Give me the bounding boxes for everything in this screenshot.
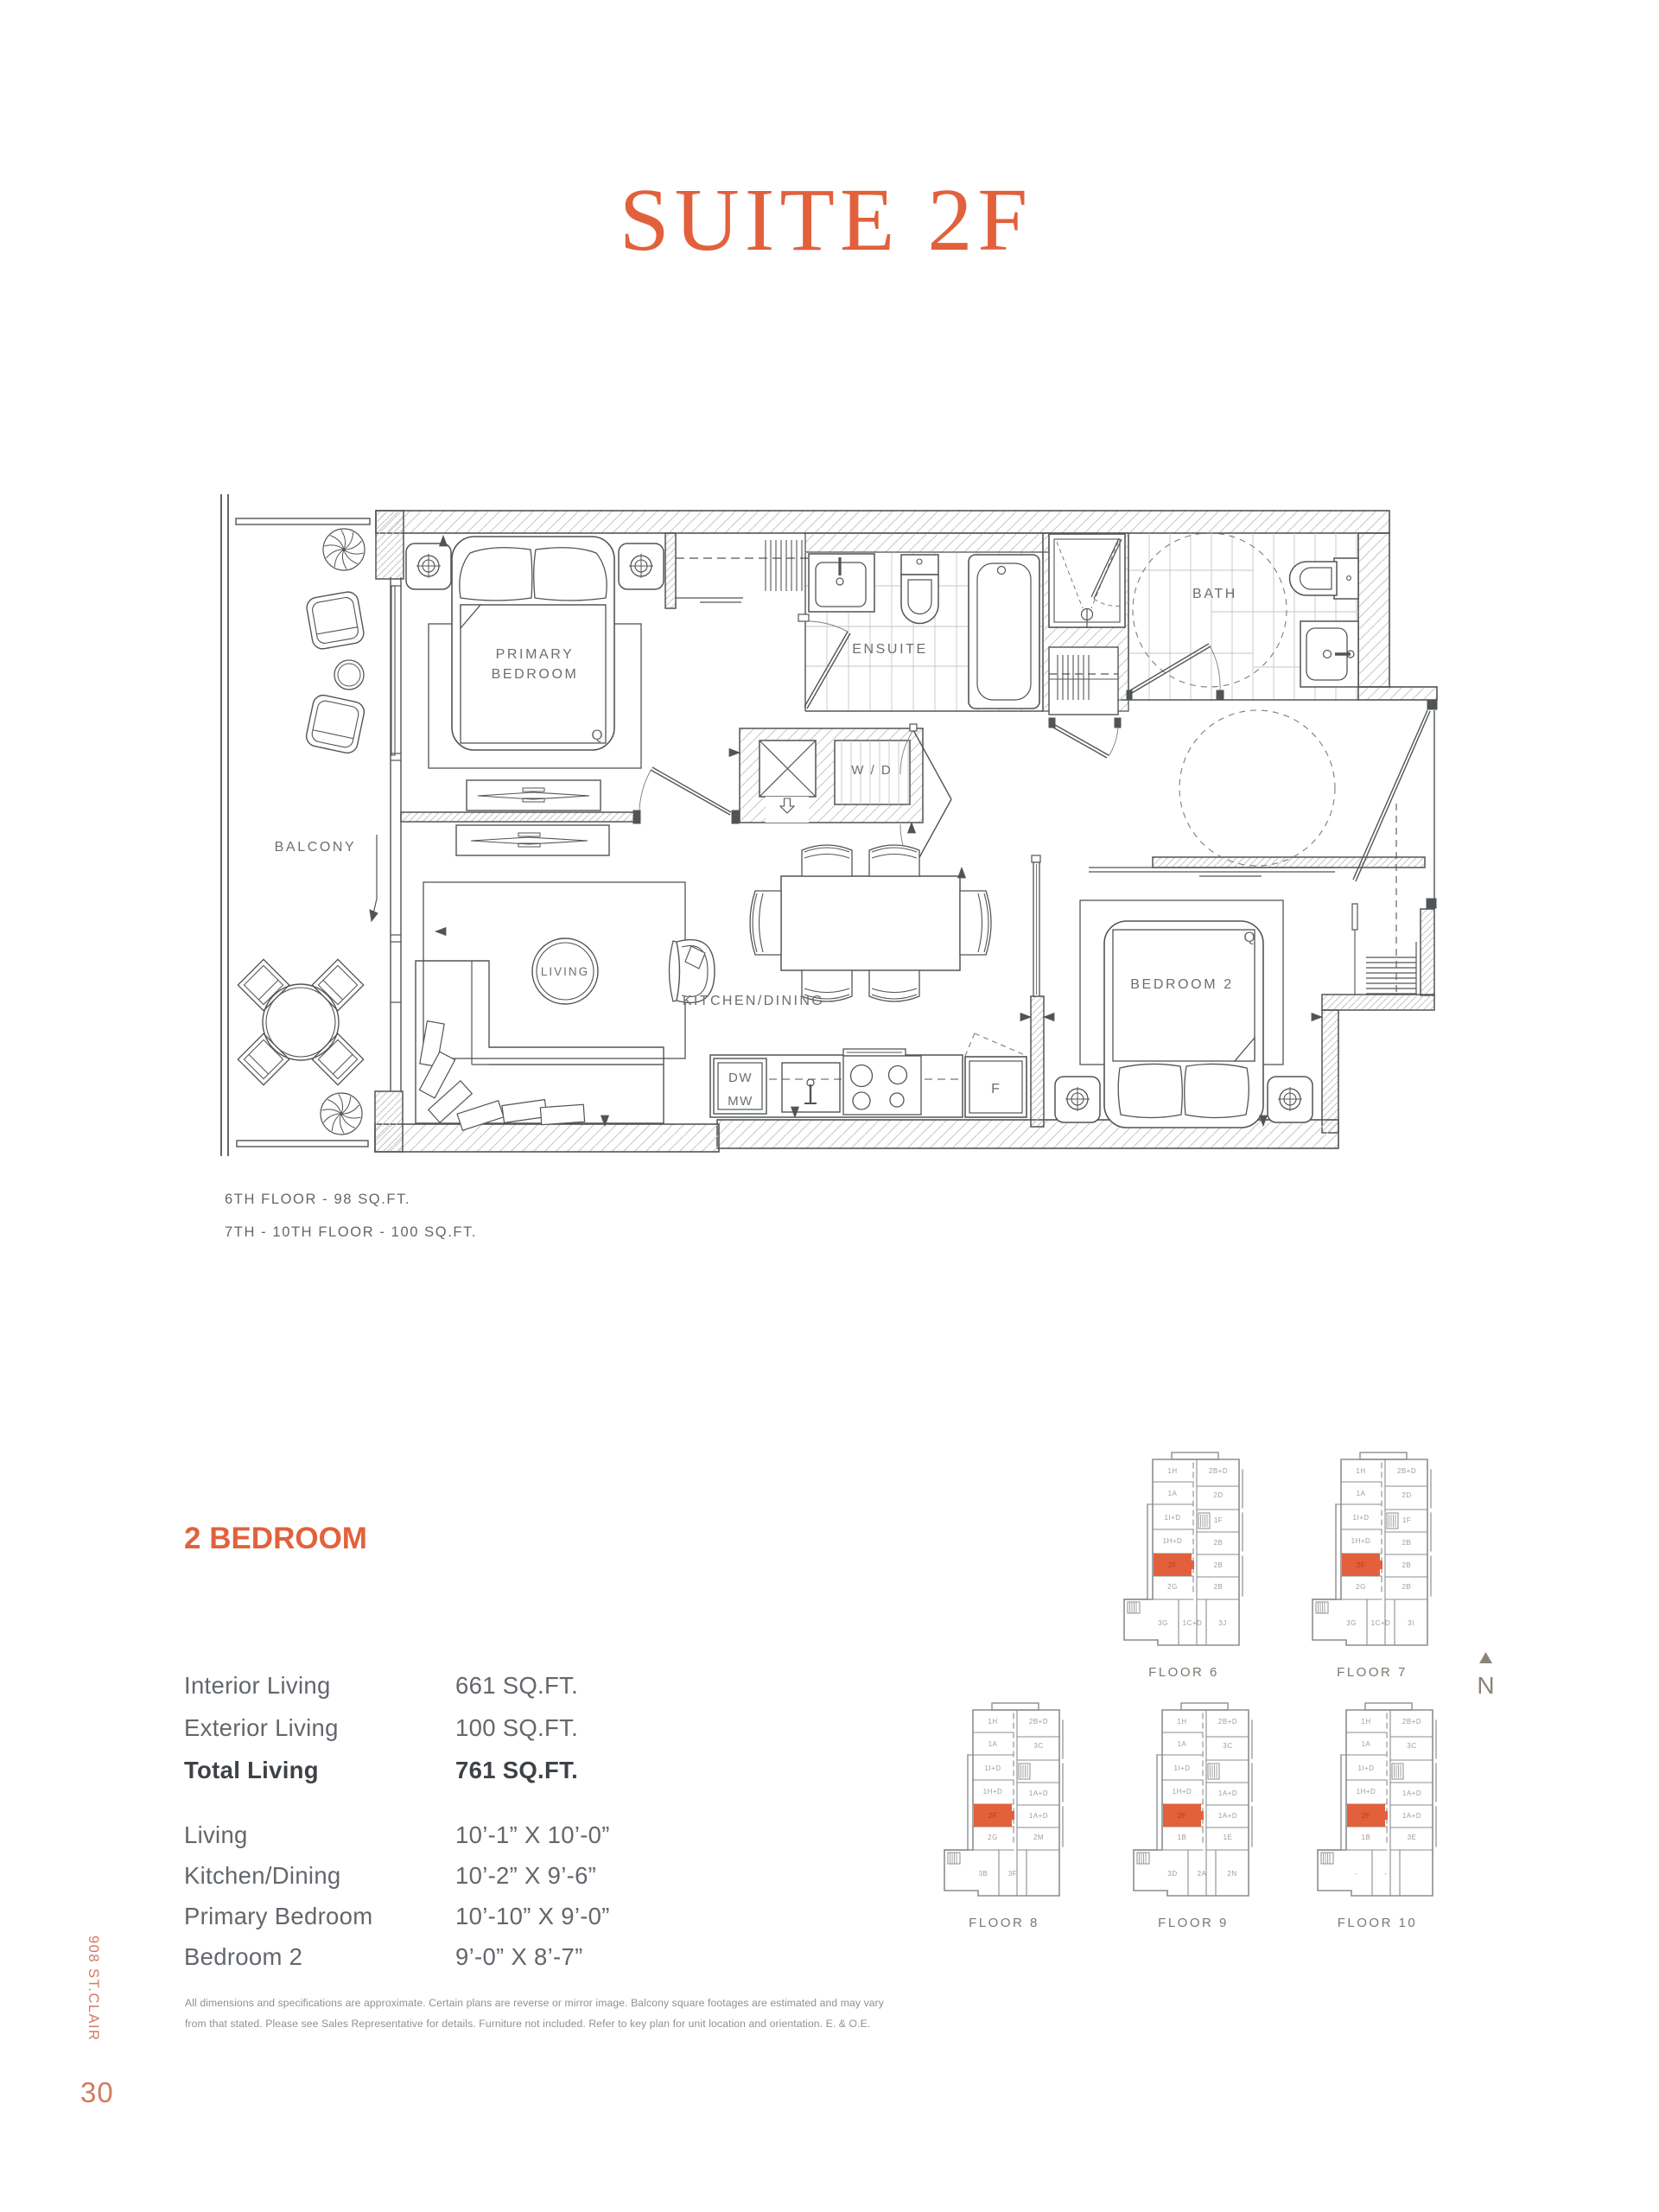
svg-text:1A: 1A: [1178, 1740, 1187, 1748]
svg-text:BATH: BATH: [1192, 587, 1237, 601]
svg-text:1B: 1B: [1178, 1834, 1187, 1841]
svg-text:100 SQ.FT.: 100 SQ.FT.: [455, 1714, 578, 1741]
svg-text:1A+D: 1A+D: [1402, 1789, 1421, 1797]
svg-text:MW: MW: [728, 1094, 753, 1109]
svg-text:1A+D: 1A+D: [1218, 1812, 1237, 1820]
svg-text:1A: 1A: [1362, 1740, 1371, 1748]
svg-text:FLOOR 6: FLOOR 6: [1148, 1665, 1219, 1680]
svg-text:3D: 3D: [1167, 1870, 1177, 1878]
svg-text:FLOOR 7: FLOOR 7: [1337, 1665, 1408, 1680]
svg-text:9’-0” X 8’-7”: 9’-0” X 8’-7”: [455, 1943, 583, 1970]
svg-text:661 SQ.FT.: 661 SQ.FT.: [455, 1672, 578, 1699]
svg-text:Primary Bedroom: Primary Bedroom: [184, 1903, 372, 1929]
svg-text:3F: 3F: [1008, 1870, 1017, 1878]
svg-text:2B+D: 2B+D: [1397, 1467, 1416, 1475]
svg-text:BEDROOM: BEDROOM: [492, 667, 579, 682]
svg-text:1H+D: 1H+D: [1163, 1537, 1183, 1545]
svg-text:2B: 2B: [1402, 1561, 1412, 1569]
svg-text:3B: 3B: [979, 1870, 988, 1878]
svg-text:1H: 1H: [1356, 1467, 1365, 1475]
svg-text:ENSUITE: ENSUITE: [852, 642, 928, 657]
svg-text:2 BEDROOM: 2 BEDROOM: [184, 1522, 367, 1555]
svg-text:1I+D: 1I+D: [1164, 1514, 1180, 1522]
svg-text:Exterior Living: Exterior Living: [184, 1714, 339, 1741]
svg-text:3C: 3C: [1223, 1742, 1232, 1750]
svg-text:2G: 2G: [988, 1834, 998, 1841]
svg-text:3E: 3E: [1408, 1834, 1417, 1841]
svg-text:2D: 2D: [1402, 1491, 1411, 1499]
svg-text:3G: 3G: [1346, 1619, 1357, 1627]
svg-text:1A: 1A: [1168, 1490, 1178, 1497]
svg-text:1I+D: 1I+D: [1357, 1764, 1374, 1772]
svg-text:761 SQ.FT.: 761 SQ.FT.: [455, 1757, 578, 1783]
svg-text:1H: 1H: [1361, 1718, 1370, 1726]
svg-text:Bedroom 2: Bedroom 2: [184, 1943, 302, 1970]
svg-text:3C: 3C: [1033, 1742, 1043, 1750]
svg-text:1H+D: 1H+D: [1173, 1788, 1192, 1796]
svg-text:2B+D: 2B+D: [1029, 1718, 1048, 1726]
svg-text:2B+D: 2B+D: [1402, 1718, 1421, 1726]
svg-text:FLOOR 10: FLOOR 10: [1338, 1916, 1418, 1930]
svg-text:Total Living: Total Living: [184, 1757, 319, 1783]
svg-text:Interior Living: Interior Living: [184, 1672, 331, 1699]
svg-text:PRIMARY: PRIMARY: [496, 647, 575, 662]
svg-text:3C: 3C: [1407, 1742, 1416, 1750]
svg-text:2F: 2F: [1168, 1561, 1177, 1569]
svg-text:F: F: [991, 1082, 1000, 1096]
svg-text:10’-2” X 9’-6”: 10’-2” X 9’-6”: [455, 1862, 596, 1889]
svg-text:1A: 1A: [1357, 1490, 1366, 1497]
svg-text:N: N: [1477, 1672, 1494, 1699]
svg-text:1H: 1H: [1177, 1718, 1186, 1726]
svg-text:1I+D: 1I+D: [984, 1764, 1001, 1772]
svg-text:1A: 1A: [988, 1740, 998, 1748]
svg-text:6TH FLOOR - 98 SQ.FT.: 6TH FLOOR - 98 SQ.FT.: [225, 1192, 410, 1207]
svg-text:-: -: [1384, 1870, 1387, 1878]
svg-text:All dimensions and specificati: All dimensions and specifications are ap…: [185, 1997, 885, 2009]
svg-text:1A+D: 1A+D: [1029, 1812, 1048, 1820]
svg-text:FLOOR 8: FLOOR 8: [969, 1916, 1039, 1930]
svg-text:30: 30: [80, 2076, 114, 2108]
svg-text:KITCHEN/DINING: KITCHEN/DINING: [683, 994, 824, 1008]
svg-text:1H+D: 1H+D: [1351, 1537, 1371, 1545]
svg-text:3G: 3G: [1158, 1619, 1168, 1627]
svg-text:2B: 2B: [1214, 1561, 1224, 1569]
svg-text:1C+D: 1C+D: [1183, 1619, 1203, 1627]
svg-text:BALCONY: BALCONY: [275, 840, 357, 855]
svg-text:1H+D: 1H+D: [983, 1788, 1003, 1796]
svg-text:1E: 1E: [1224, 1834, 1233, 1841]
svg-text:1I+D: 1I+D: [1352, 1514, 1369, 1522]
svg-text:1A+D: 1A+D: [1218, 1789, 1237, 1797]
svg-text:1A+D: 1A+D: [1402, 1812, 1421, 1820]
svg-text:1H: 1H: [1167, 1467, 1177, 1475]
svg-text:2F: 2F: [988, 1812, 997, 1820]
svg-text:Q: Q: [1243, 929, 1255, 945]
svg-text:3I: 3I: [1408, 1619, 1414, 1627]
svg-text:1A+D: 1A+D: [1029, 1789, 1048, 1797]
svg-text:DW: DW: [728, 1071, 753, 1085]
svg-text:2A: 2A: [1198, 1870, 1207, 1878]
svg-text:1H+D: 1H+D: [1357, 1788, 1376, 1796]
svg-text:2B: 2B: [1214, 1539, 1224, 1547]
svg-text:2N: 2N: [1227, 1870, 1236, 1878]
svg-text:3J: 3J: [1218, 1619, 1226, 1627]
svg-text:Kitchen/Dining: Kitchen/Dining: [184, 1862, 341, 1889]
svg-text:2B: 2B: [1214, 1583, 1224, 1591]
svg-text:1H: 1H: [988, 1718, 997, 1726]
svg-text:2F: 2F: [1357, 1561, 1365, 1569]
svg-text:908 ST.CLAIR: 908 ST.CLAIR: [86, 1935, 101, 2042]
svg-text:1I+D: 1I+D: [1173, 1764, 1190, 1772]
svg-text:2B: 2B: [1402, 1539, 1412, 1547]
svg-text:Living: Living: [184, 1821, 248, 1848]
svg-text:2F: 2F: [1362, 1812, 1370, 1820]
svg-text:1F: 1F: [1214, 1516, 1223, 1524]
svg-text:BEDROOM 2: BEDROOM 2: [1130, 977, 1233, 992]
svg-text:10’-10” X 9’-0”: 10’-10” X 9’-0”: [455, 1903, 610, 1929]
svg-text:10’-1” X 10’-0”: 10’-1” X 10’-0”: [455, 1821, 610, 1848]
svg-text:W / D: W / D: [851, 763, 893, 778]
svg-text:from that stated. Please see S: from that stated. Please see Sales Repre…: [185, 2018, 870, 2030]
svg-text:Q: Q: [591, 727, 602, 743]
svg-text:LIVING: LIVING: [541, 965, 589, 978]
svg-text:2B+D: 2B+D: [1218, 1718, 1237, 1726]
svg-text:-: -: [1355, 1870, 1357, 1878]
svg-text:1F: 1F: [1402, 1516, 1411, 1524]
svg-text:2B+D: 2B+D: [1209, 1467, 1228, 1475]
svg-text:2B: 2B: [1402, 1583, 1412, 1591]
svg-text:2G: 2G: [1167, 1583, 1178, 1591]
svg-text:7TH - 10TH FLOOR - 100 SQ.FT.: 7TH - 10TH FLOOR - 100 SQ.FT.: [225, 1224, 477, 1240]
svg-text:2G: 2G: [1356, 1583, 1366, 1591]
svg-text:2D: 2D: [1213, 1491, 1223, 1499]
svg-text:FLOOR 9: FLOOR 9: [1158, 1916, 1229, 1930]
svg-text:2M: 2M: [1033, 1834, 1044, 1841]
svg-text:1C+D: 1C+D: [1371, 1619, 1391, 1627]
svg-text:1B: 1B: [1362, 1834, 1371, 1841]
svg-text:SUITE 2F: SUITE 2F: [620, 170, 1033, 270]
svg-text:2F: 2F: [1178, 1812, 1186, 1820]
